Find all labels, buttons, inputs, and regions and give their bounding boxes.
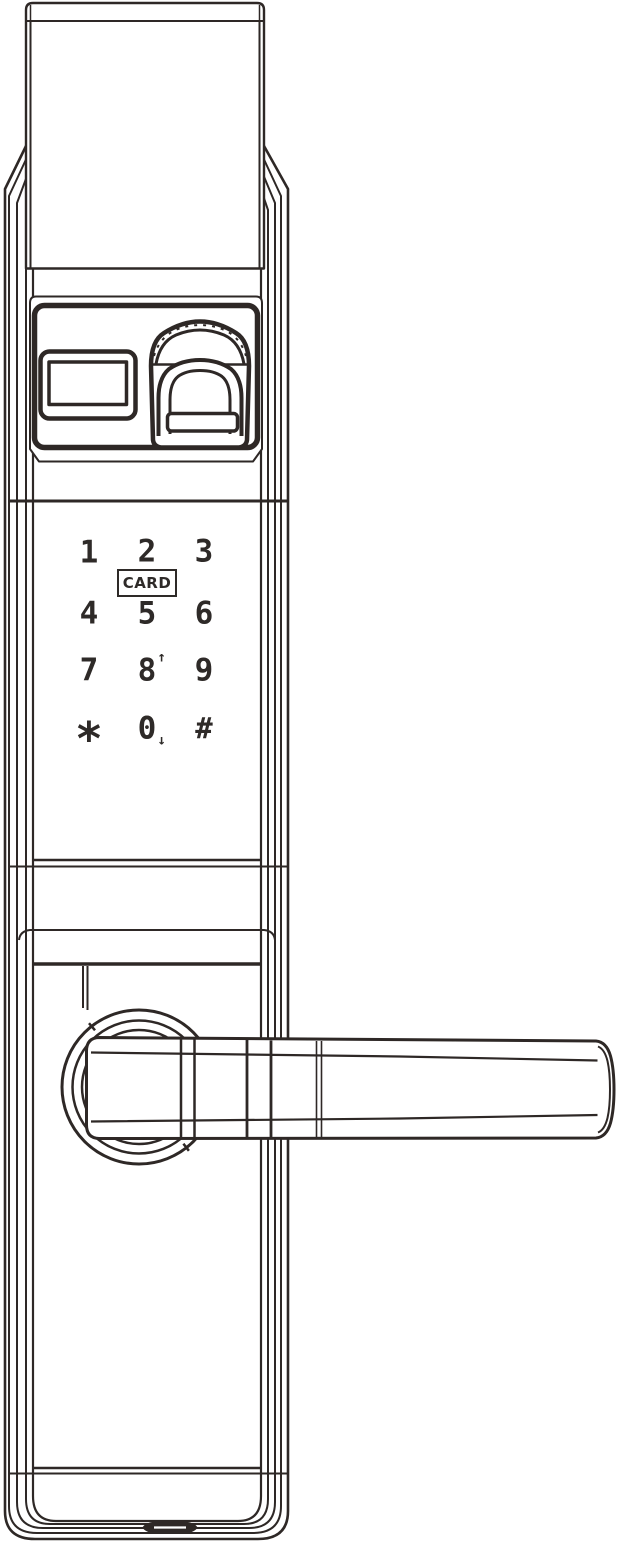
key-6[interactable]: 6 bbox=[195, 599, 214, 630]
key-4[interactable]: 4 bbox=[80, 599, 99, 630]
key-1[interactable]: 1 bbox=[80, 538, 99, 569]
key-5[interactable]: 5 bbox=[138, 599, 157, 630]
key-0-digit: 0 bbox=[138, 711, 157, 747]
keypad-panel: 1 2 3 CARD 4 5 6 7 8↑ 9 * 0↓ # bbox=[0, 0, 617, 1541]
up-arrow-icon: ↑ bbox=[157, 651, 165, 665]
key-0[interactable]: 0↓ bbox=[138, 714, 157, 745]
key-7[interactable]: 7 bbox=[80, 656, 99, 687]
key-hash[interactable]: # bbox=[195, 715, 212, 744]
key-9[interactable]: 9 bbox=[195, 656, 214, 687]
card-reader-label: CARD bbox=[117, 569, 177, 597]
door-lock-diagram: 1 2 3 CARD 4 5 6 7 8↑ 9 * 0↓ # bbox=[0, 0, 617, 1541]
down-arrow-icon: ↓ bbox=[157, 734, 165, 748]
key-8[interactable]: 8↑ bbox=[138, 656, 157, 687]
key-3[interactable]: 3 bbox=[195, 537, 214, 568]
key-star[interactable]: * bbox=[75, 716, 103, 762]
key-8-digit: 8 bbox=[138, 653, 157, 689]
key-2[interactable]: 2 bbox=[138, 537, 157, 568]
